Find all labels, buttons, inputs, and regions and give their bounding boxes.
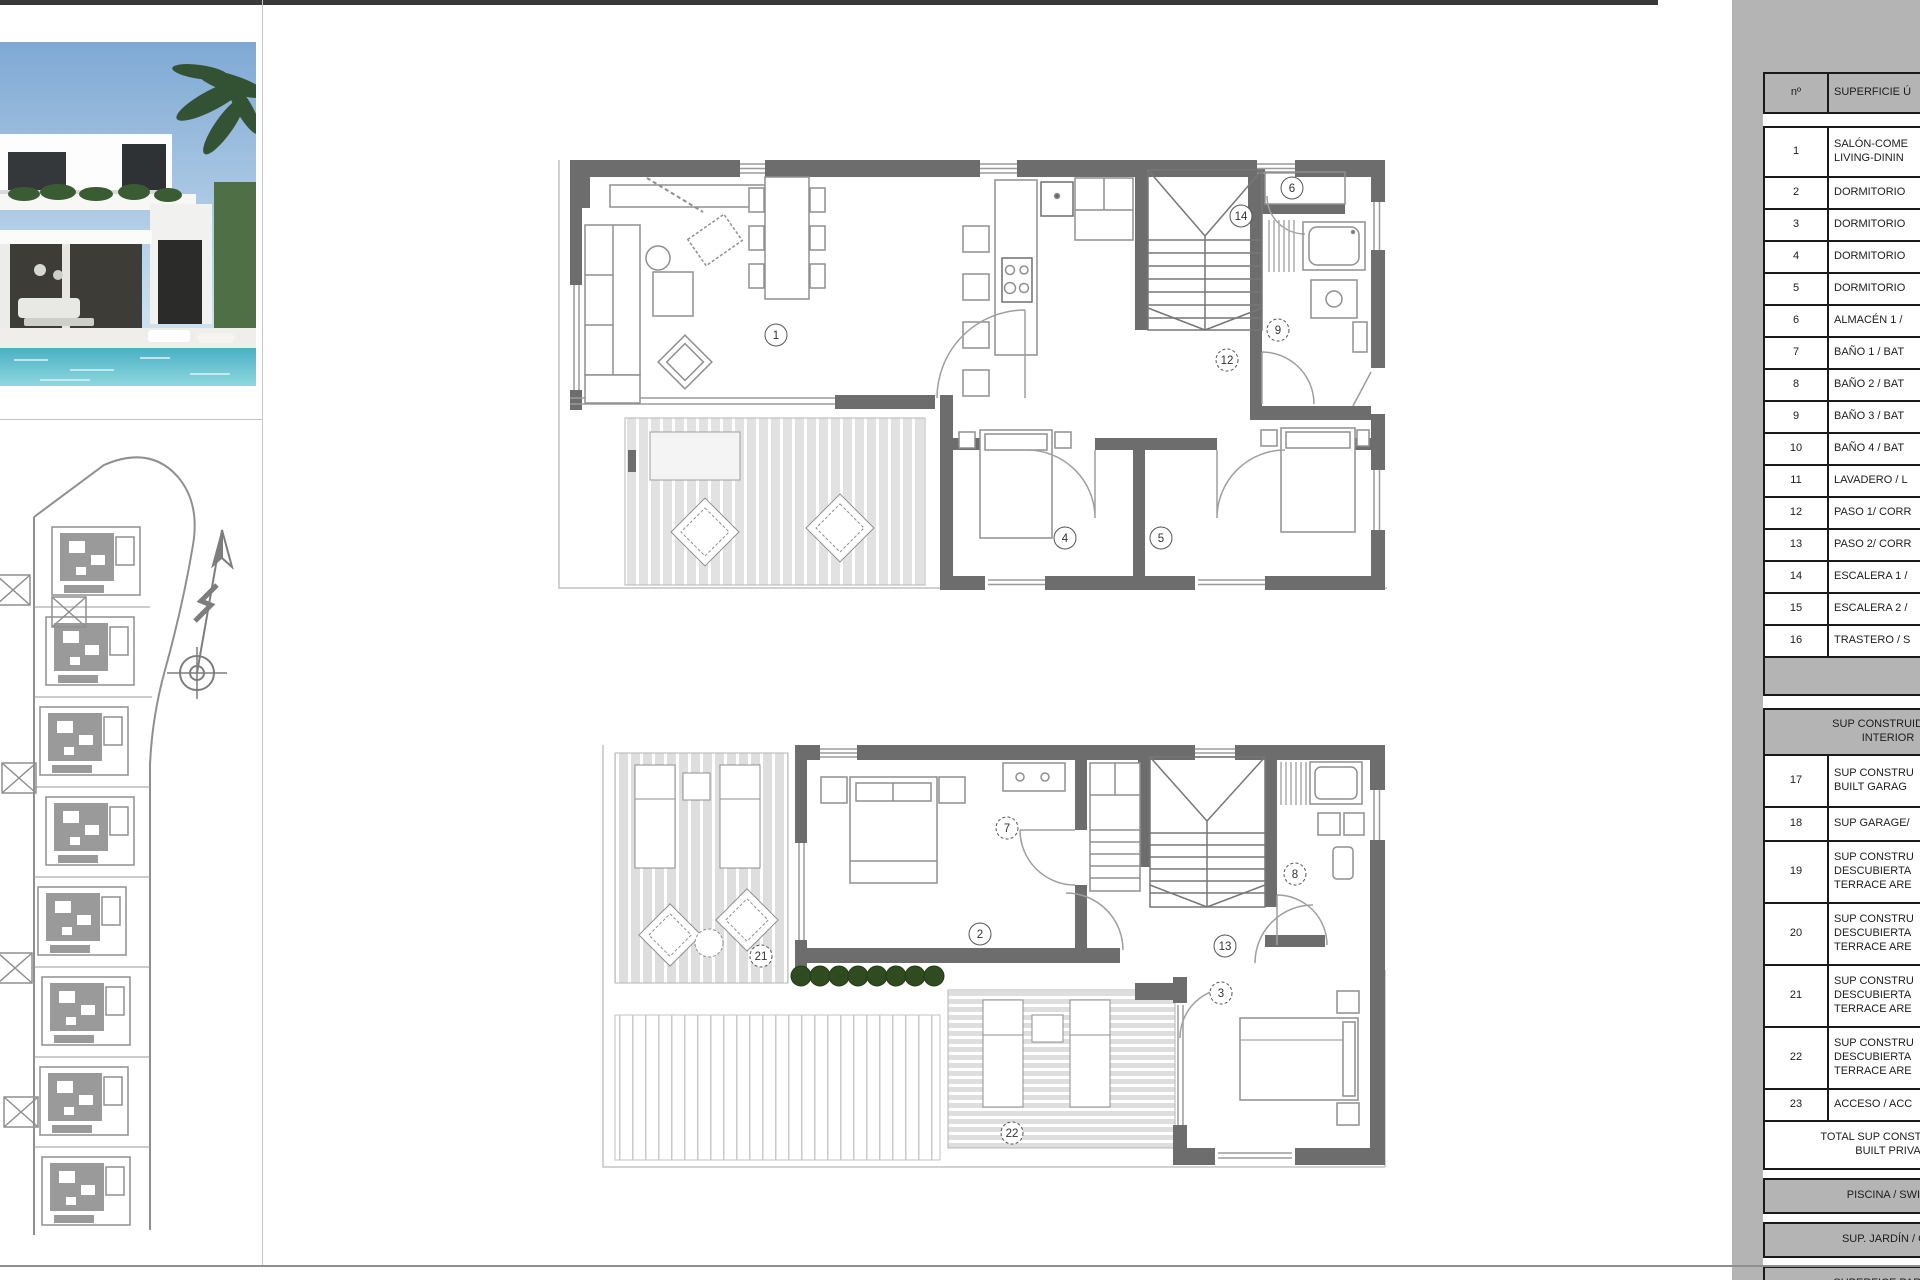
- site-plan: [0, 455, 268, 1245]
- table-row: 12PASO 1/ CORR: [1765, 496, 1920, 528]
- table-row: 5DORMITORIO: [1765, 272, 1920, 304]
- row-label: ALMACÉN 1 /: [1829, 306, 1920, 336]
- hedge-bushes: [791, 966, 944, 986]
- row-label: BAÑO 1 / BAT: [1829, 338, 1920, 368]
- floor-plan-upper: 1 4 5 6 9 12 14: [555, 140, 1400, 600]
- bedroom-5: [1217, 428, 1369, 532]
- row-number: 7: [1765, 338, 1829, 368]
- row-label: BAÑO 3 / BAT: [1829, 402, 1920, 432]
- kitchen: [963, 178, 1133, 396]
- table-row: 13PASO 2/ CORR: [1765, 528, 1920, 560]
- row-number: 13: [1765, 530, 1829, 560]
- lot-lines: [34, 607, 152, 1147]
- row-label: LAVADERO / L: [1829, 466, 1920, 496]
- row-number: 19: [1765, 842, 1829, 902]
- row-number: 23: [1765, 1090, 1829, 1120]
- row-label: SALÓN-COME LIVING-DININ: [1829, 128, 1920, 176]
- row-number: 14: [1765, 562, 1829, 592]
- bathroom-8: [1277, 762, 1364, 945]
- plan-sheet: 1 4 5 6 9 12 14: [0, 0, 1920, 1280]
- pool-bar: PISCINA / SWIM: [1763, 1178, 1920, 1214]
- row-number: 10: [1765, 434, 1829, 464]
- room-label-21: 21: [750, 945, 772, 967]
- table-row: 19SUP CONSTRU DESCUBIERTA TERRACE ARE: [1765, 840, 1920, 902]
- room-label-4: 4: [1054, 527, 1076, 549]
- svg-text:8: 8: [1292, 869, 1298, 881]
- table-row: 11LAVADERO / L: [1765, 464, 1920, 496]
- room-label-6: 6: [1281, 177, 1303, 199]
- table-block-useful-areas: 1SALÓN-COME LIVING-DININ 2DORMITORIO 3DO…: [1763, 126, 1920, 696]
- sheet-top-border: [0, 0, 1658, 5]
- svg-text:12: 12: [1221, 355, 1234, 367]
- row-label: DORMITORIO: [1829, 274, 1920, 304]
- room-label-2: 2: [969, 923, 991, 945]
- row-label: BAÑO 4 / BAT: [1829, 434, 1920, 464]
- upper-terrace: [625, 418, 925, 585]
- table-row: 8BAÑO 2 / BAT: [1765, 368, 1920, 400]
- row-label: SUP CONSTRU DESCUBIERTA TERRACE ARE: [1829, 1028, 1920, 1088]
- row-label: DORMITORIO: [1829, 178, 1920, 208]
- svg-text:4: 4: [1062, 533, 1069, 545]
- row-number: 3: [1765, 210, 1829, 240]
- row-label: DORMITORIO: [1829, 242, 1920, 272]
- row-number: 12: [1765, 498, 1829, 528]
- parcel-bar: SUPERFICE PARCEL: [1763, 1266, 1920, 1280]
- table-row: 17SUP CONSTRU BUILT GARAG: [1765, 756, 1920, 806]
- living-furniture: [585, 177, 825, 403]
- photo-garden-right: [214, 182, 256, 334]
- row-number: 8: [1765, 370, 1829, 400]
- table-row: 6ALMACÉN 1 /: [1765, 304, 1920, 336]
- room-label-14: 14: [1230, 205, 1252, 227]
- deck-lower-left: [615, 1015, 940, 1160]
- floor-plan-lower: 2 3 7 8 13 21 22: [595, 735, 1395, 1175]
- row-label: ESCALERA 2 /: [1829, 594, 1920, 624]
- row-label: DORMITORIO: [1829, 210, 1920, 240]
- svg-text:7: 7: [1004, 823, 1010, 835]
- row-label: ACCESO / ACC: [1829, 1090, 1920, 1120]
- row-number: 6: [1765, 306, 1829, 336]
- row-number: 16: [1765, 626, 1829, 656]
- bedroom-3: [1240, 991, 1359, 1125]
- row-label: ESCALERA 1 /: [1829, 562, 1920, 592]
- table-row: 16TRASTERO / S: [1765, 624, 1920, 656]
- row-label: BAÑO 2 / BAT: [1829, 370, 1920, 400]
- table-row: 15ESCALERA 2 /: [1765, 592, 1920, 624]
- sheet-bottom-border: [0, 1265, 1920, 1267]
- table-row: 1SALÓN-COME LIVING-DININ: [1765, 128, 1920, 176]
- section-header: SUP CONSTRUIDA IN INTERIOR: [1765, 710, 1920, 756]
- room-label-22: 22: [1001, 1122, 1023, 1144]
- row-number: 20: [1765, 904, 1829, 964]
- header-num: nº: [1765, 74, 1829, 112]
- row-number: 5: [1765, 274, 1829, 304]
- svg-text:5: 5: [1158, 533, 1164, 545]
- site-buildings: [0, 527, 140, 1225]
- room-label-13: 13: [1214, 935, 1236, 957]
- table-row: 7BAÑO 1 / BAT: [1765, 336, 1920, 368]
- table-row: 18SUP GARAGE/: [1765, 806, 1920, 840]
- svg-text:6: 6: [1289, 183, 1295, 195]
- table-row: 3DORMITORIO: [1765, 208, 1920, 240]
- svg-text:2: 2: [977, 929, 983, 941]
- row-label: TRASTERO / S: [1829, 626, 1920, 656]
- area-table: nº SUPERFICIE Ú 1SALÓN-COME LIVING-DININ…: [1763, 72, 1920, 1280]
- bedroom-4: [959, 430, 1095, 538]
- row-number: 18: [1765, 808, 1829, 840]
- row-label: SUP CONSTRU BUILT GARAG: [1829, 756, 1920, 806]
- terrace-22: [948, 990, 1175, 1148]
- row-number: 9: [1765, 402, 1829, 432]
- row-number: 21: [1765, 966, 1829, 1026]
- svg-text:14: 14: [1235, 211, 1248, 223]
- table-row: 4DORMITORIO: [1765, 240, 1920, 272]
- photo-underline: [0, 419, 262, 420]
- svg-text:22: 22: [1006, 1128, 1019, 1140]
- header-desc: SUPERFICIE Ú: [1829, 74, 1920, 112]
- row-label: SUP GARAGE/: [1829, 808, 1920, 840]
- garden-bar: SUP. JARDÍN / GA: [1763, 1222, 1920, 1258]
- storage-room: [1265, 172, 1345, 234]
- row-label: PASO 2/ CORR: [1829, 530, 1920, 560]
- row-number: 4: [1765, 242, 1829, 272]
- table-row: 22SUP CONSTRU DESCUBIERTA TERRACE ARE: [1765, 1026, 1920, 1088]
- table-row: 2DORMITORIO: [1765, 176, 1920, 208]
- room-label-3: 3: [1210, 982, 1232, 1004]
- svg-text:13: 13: [1219, 941, 1232, 953]
- row-label: SUP CONSTRU DESCUBIERTA TERRACE ARE: [1829, 842, 1920, 902]
- room-label-5: 5: [1150, 527, 1172, 549]
- table-row: 10BAÑO 4 / BAT: [1765, 432, 1920, 464]
- row-label: PASO 1/ CORR: [1829, 498, 1920, 528]
- room-label-1: 1: [765, 324, 787, 346]
- row-label: SUP CONSTRU DESCUBIERTA TERRACE ARE: [1829, 966, 1920, 1026]
- table-header: nº SUPERFICIE Ú: [1763, 72, 1920, 114]
- table-row: 14ESCALERA 1 /: [1765, 560, 1920, 592]
- gray-spacer-row: [1765, 656, 1920, 694]
- room-label-8: 8: [1284, 863, 1306, 885]
- room-label-12: 12: [1216, 349, 1238, 371]
- row-number: 17: [1765, 756, 1829, 806]
- villa-photo: [0, 42, 256, 386]
- svg-text:3: 3: [1218, 988, 1224, 1000]
- row-number: 22: [1765, 1028, 1829, 1088]
- table-row: 9BAÑO 3 / BAT: [1765, 400, 1920, 432]
- table-row: 20SUP CONSTRU DESCUBIERTA TERRACE ARE: [1765, 902, 1920, 964]
- total-row: TOTAL SUP CONSTRUIDA BUILT PRIVA: [1765, 1120, 1920, 1168]
- svg-text:9: 9: [1275, 325, 1281, 337]
- svg-text:21: 21: [755, 951, 768, 963]
- table-row: 23ACCESO / ACC: [1765, 1088, 1920, 1120]
- bedroom-2: [821, 763, 1075, 885]
- staircase-upper: [1148, 170, 1262, 330]
- table-row: 21SUP CONSTRU DESCUBIERTA TERRACE ARE: [1765, 964, 1920, 1026]
- row-number: 2: [1765, 178, 1829, 208]
- table-block-built-areas: SUP CONSTRUIDA IN INTERIOR 17SUP CONSTRU…: [1763, 708, 1920, 1170]
- photo-pool: [0, 348, 256, 386]
- row-number: 11: [1765, 466, 1829, 496]
- svg-text:1: 1: [773, 330, 779, 342]
- row-number: 1: [1765, 128, 1829, 176]
- row-number: 15: [1765, 594, 1829, 624]
- closet: [1090, 763, 1140, 891]
- room-label-9: 9: [1267, 319, 1289, 341]
- bathroom-9: [1262, 220, 1367, 404]
- staircase-lower: [1150, 757, 1265, 907]
- room-label-7: 7: [996, 817, 1018, 839]
- row-label: SUP CONSTRU DESCUBIERTA TERRACE ARE: [1829, 904, 1920, 964]
- north-arrow: [167, 530, 232, 699]
